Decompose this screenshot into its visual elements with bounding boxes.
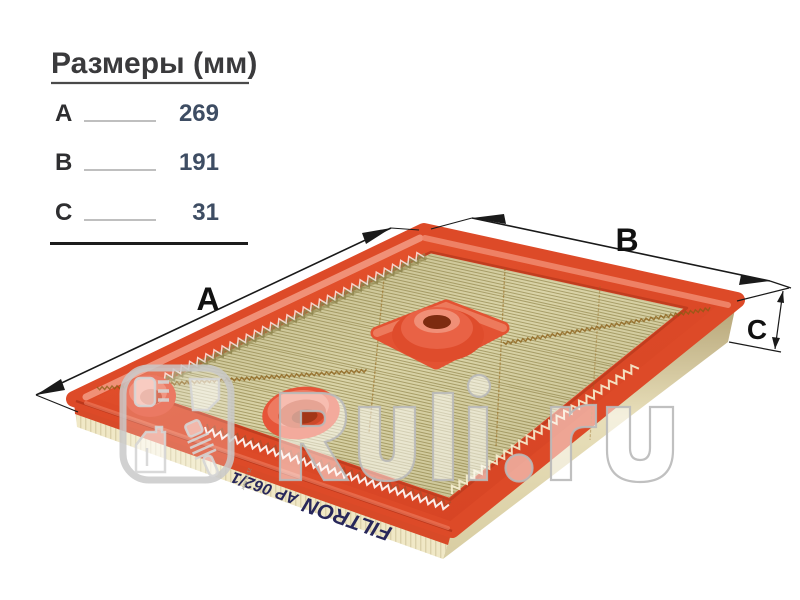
svg-text:Размеры (мм): Размеры (мм) (51, 47, 257, 80)
svg-text:C: C (55, 199, 72, 226)
svg-text:B: B (615, 222, 638, 258)
svg-text:191: 191 (179, 149, 219, 176)
svg-text:31: 31 (192, 199, 219, 226)
svg-text:269: 269 (179, 100, 219, 127)
svg-text:A: A (55, 100, 72, 127)
svg-text:B: B (55, 149, 72, 176)
svg-text:C: C (747, 314, 767, 345)
svg-text:A: A (196, 281, 219, 317)
